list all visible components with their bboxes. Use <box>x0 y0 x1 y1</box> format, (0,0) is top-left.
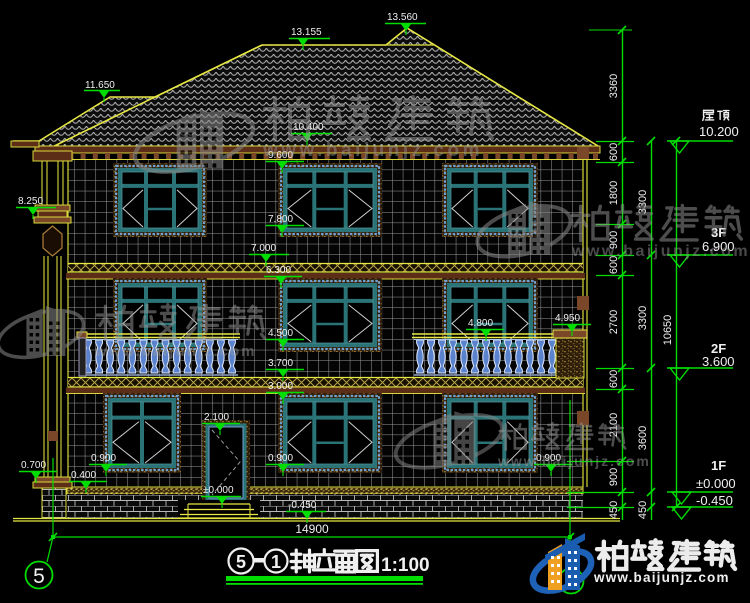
svg-text:4.800: 4.800 <box>468 318 493 329</box>
svg-text:www.baijunjz.com: www.baijunjz.com <box>571 243 750 260</box>
svg-text:600: 600 <box>608 370 620 388</box>
svg-text:4.950: 4.950 <box>555 313 580 324</box>
svg-text:2700: 2700 <box>608 310 620 334</box>
svg-text:3.700: 3.700 <box>268 358 293 369</box>
svg-text:11.650: 11.650 <box>85 80 115 91</box>
svg-text:7.800: 7.800 <box>268 214 293 225</box>
svg-text:0.700: 0.700 <box>21 460 46 471</box>
svg-text:3360: 3360 <box>608 74 620 98</box>
svg-text:www.baijunjz.com: www.baijunjz.com <box>262 140 483 161</box>
svg-text:7.000: 7.000 <box>251 243 276 254</box>
svg-text:±0.000: ±0.000 <box>696 476 736 491</box>
svg-text:450: 450 <box>637 501 649 519</box>
svg-text:-0.450: -0.450 <box>288 500 317 511</box>
svg-text:±0.000: ±0.000 <box>203 485 234 496</box>
svg-text:1F: 1F <box>711 458 726 473</box>
svg-text:13.560: 13.560 <box>387 12 418 23</box>
svg-text:5: 5 <box>33 565 45 588</box>
svg-text:0.400: 0.400 <box>71 470 96 481</box>
svg-text:900: 900 <box>608 468 620 486</box>
svg-text:3.000: 3.000 <box>268 381 293 392</box>
svg-text:1:100: 1:100 <box>381 555 430 576</box>
svg-text:1: 1 <box>271 552 281 572</box>
svg-text:4.500: 4.500 <box>268 328 293 339</box>
svg-text:3600: 3600 <box>637 426 649 450</box>
svg-text:1800: 1800 <box>608 181 620 205</box>
svg-text:0.900: 0.900 <box>91 453 116 464</box>
svg-text:www.baijunjz.com: www.baijunjz.com <box>593 570 730 585</box>
svg-text:3.600: 3.600 <box>702 354 735 369</box>
svg-text:600: 600 <box>608 143 620 161</box>
svg-text:14900: 14900 <box>295 522 329 536</box>
svg-text:3300: 3300 <box>637 306 649 330</box>
svg-text:13.155: 13.155 <box>291 27 322 38</box>
svg-text:10.200: 10.200 <box>699 124 739 139</box>
svg-text:450: 450 <box>608 501 620 519</box>
svg-text:www.baijunjz.com: www.baijunjz.com <box>497 453 651 469</box>
svg-text:6.300: 6.300 <box>266 265 291 276</box>
svg-text:www.baijunjz.com: www.baijunjz.com <box>94 343 256 360</box>
svg-text:10650: 10650 <box>662 315 674 346</box>
svg-text:0.900: 0.900 <box>268 453 293 464</box>
svg-text:-0.450: -0.450 <box>696 493 733 508</box>
svg-text:2.100: 2.100 <box>204 412 229 423</box>
svg-text:5: 5 <box>236 552 246 572</box>
svg-text:8.250: 8.250 <box>18 196 43 207</box>
